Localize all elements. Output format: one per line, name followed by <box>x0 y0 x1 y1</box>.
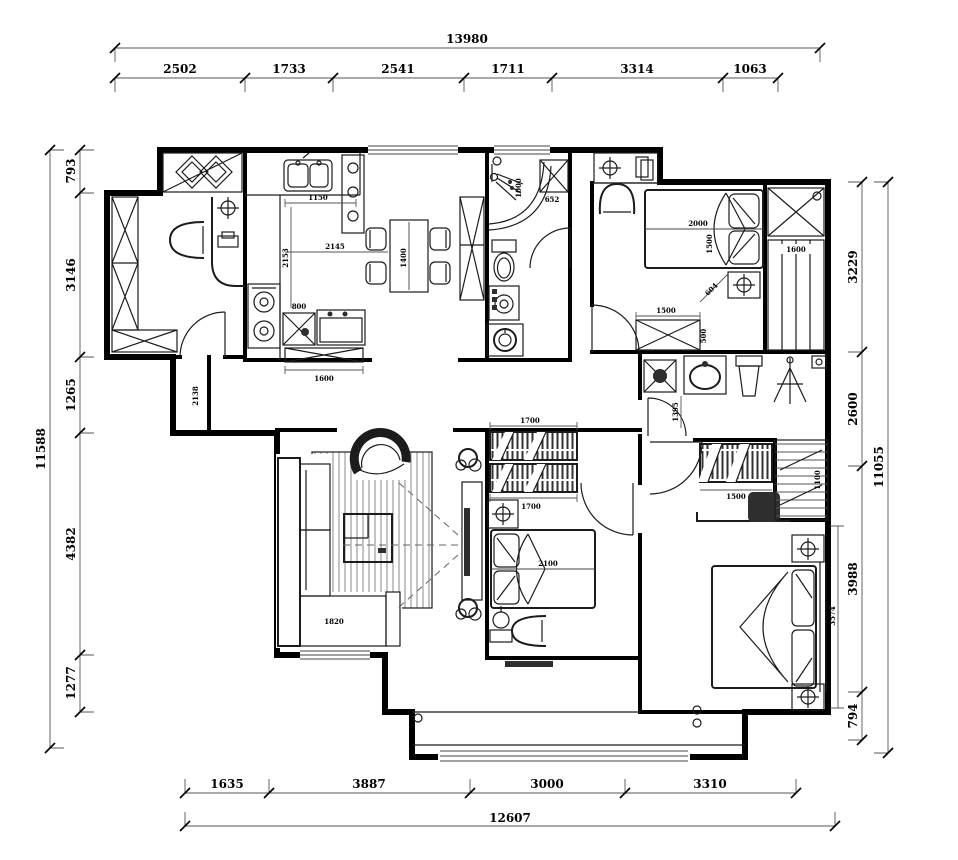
bath2-corner-drain <box>812 356 826 368</box>
door-study <box>180 312 225 357</box>
dim-bed2-closet: 1600 <box>786 245 806 254</box>
bedroom2-dresser <box>594 153 658 183</box>
tv-cabinet <box>462 482 482 600</box>
ceiling-lamp-icon <box>797 538 819 560</box>
dim-kitchen-depth: 2153 <box>281 248 290 268</box>
drain-icon <box>693 719 701 727</box>
pillow <box>792 630 814 686</box>
dim-bath1-width: 1000 <box>514 178 523 198</box>
dining-chair <box>430 262 450 284</box>
tv-screen <box>464 508 470 576</box>
dimension-chain-right: 11055 3229 2600 3988 794 <box>846 177 893 758</box>
kitchen-lower-cabinets <box>283 310 365 362</box>
dim-dining-table: 1400 <box>399 248 408 268</box>
dim-bed2-wardrobe: 1500 <box>656 306 676 315</box>
duct-shaft <box>540 160 568 192</box>
dim-sofa: 1820 <box>324 617 344 626</box>
bedroom3-bed <box>491 530 595 608</box>
bedroom3-nightstand <box>488 500 518 528</box>
dim-left-2: 3146 <box>64 258 78 291</box>
dim-bed3-shelf-b: 1700 <box>521 502 541 511</box>
stove <box>248 195 280 360</box>
dim-bottom-4: 3310 <box>693 777 726 791</box>
bedroom2-bed <box>645 190 763 268</box>
bedroom2-nightstand <box>728 272 760 298</box>
washing-machine <box>489 286 519 320</box>
dim-top-1: 2502 <box>163 62 196 76</box>
bedroom3-bookshelf <box>490 432 577 492</box>
pillow <box>792 570 814 626</box>
dim-bed2-length: 2000 <box>688 219 708 228</box>
bath2-washer <box>644 360 676 392</box>
dim-left-3: 1265 <box>64 378 78 411</box>
entry-cabinet <box>163 153 242 192</box>
dim-bed2-width: 1500 <box>705 234 714 254</box>
dim-bed2-wardrobe-depth: 500 <box>699 329 708 344</box>
dim-left-5: 1277 <box>64 666 78 699</box>
kitchen-tall-cabinet <box>342 155 364 233</box>
dim-bottom-2: 3887 <box>352 777 385 791</box>
study-printer <box>218 232 238 247</box>
bedroom2-closet <box>768 188 824 350</box>
door-bedroom-3 <box>581 483 633 535</box>
dim-kitchen-cab: 1600 <box>314 374 334 383</box>
dim-master-shelf: 1500 <box>726 492 746 501</box>
dimension-chain-left: 11588 793 3146 1265 4382 1277 <box>34 145 94 753</box>
master-nightstand <box>792 535 824 562</box>
door-bathroom-1 <box>530 228 570 268</box>
dim-right-2: 2600 <box>846 392 860 425</box>
armchair <box>352 433 408 480</box>
dim-top-6: 1063 <box>733 62 766 76</box>
dim-bed2-diagonal: 604 <box>703 281 720 298</box>
study-chair <box>170 222 204 258</box>
floor-plan-canvas: 13980 2502 1733 2541 1711 3314 1063 1158… <box>0 0 958 860</box>
dim-top-2: 1733 <box>272 62 305 76</box>
dim-right-1: 3229 <box>846 250 860 283</box>
dining-chair <box>430 228 450 250</box>
windowsill-bar <box>505 661 553 667</box>
dim-bath1-niche: 652 <box>545 195 560 204</box>
kitchen-sink <box>245 150 360 195</box>
round-basin <box>487 324 523 356</box>
study-bench <box>112 330 177 352</box>
dim-kitchen-cab-small: 800 <box>292 302 307 311</box>
plant-icon <box>456 449 481 471</box>
dim-total-top: 13980 <box>446 32 488 46</box>
master-bed <box>712 562 826 692</box>
living-room <box>276 433 482 648</box>
dim-total-right: 11055 <box>872 446 886 488</box>
dim-master-closet: 1100 <box>813 470 822 490</box>
dim-right-3: 3988 <box>846 562 860 595</box>
dining-chair <box>366 228 386 250</box>
study-wardrobe <box>112 197 138 330</box>
dim-bath2-depth: 1395 <box>671 402 680 422</box>
dim-kitchen-counter: 1150 <box>308 193 328 202</box>
dim-bed3-bed: 2100 <box>538 559 558 568</box>
door-master-bedroom <box>650 442 702 494</box>
dim-total-bottom: 12607 <box>489 811 531 825</box>
drain-icon <box>414 714 422 722</box>
bath2-basin <box>684 356 726 394</box>
bathroom-2 <box>644 356 826 404</box>
pillow <box>729 231 759 264</box>
bedroom2-chair <box>600 184 634 214</box>
dim-bed3-shelf-a: 1700 <box>520 416 540 425</box>
dim-bottom-3: 3000 <box>530 777 563 791</box>
dim-master-zone: 3574 <box>828 606 837 626</box>
ceiling-lamp-icon <box>492 503 514 525</box>
toilet-icon <box>492 240 516 281</box>
dim-total-left: 11588 <box>34 428 48 470</box>
plant-icon <box>456 599 481 620</box>
master-bookshelf <box>698 444 772 482</box>
ceiling-lamp-icon <box>733 274 755 296</box>
bedroom-3 <box>488 432 595 667</box>
dim-top-5: 3314 <box>620 62 653 76</box>
dimension-chain-bottom: 12607 1635 3887 3000 3310 <box>180 777 840 831</box>
bath2-shower <box>774 357 806 404</box>
dim-hallway: 2138 <box>191 386 200 406</box>
bedroom3-desk <box>490 606 546 646</box>
drain-icon <box>493 157 501 165</box>
dim-right-4: 794 <box>846 703 860 728</box>
dim-bottom-1: 1635 <box>210 777 243 791</box>
dim-left-4: 4382 <box>64 527 78 560</box>
bathroom-1 <box>487 157 568 356</box>
balcony <box>414 706 701 727</box>
ceiling-lamp-icon <box>599 157 621 179</box>
dim-top-4: 1711 <box>491 62 524 76</box>
ceiling-lamp-icon <box>797 686 819 708</box>
dining-chair <box>366 262 386 284</box>
bedroom2-wardrobe <box>636 320 700 350</box>
bath2-toilet <box>736 356 762 396</box>
door-bedroom-2 <box>592 305 639 352</box>
floor-plan-page: 13980 2502 1733 2541 1711 3314 1063 1158… <box>0 0 958 860</box>
dim-left-1: 793 <box>64 158 78 183</box>
dining-side-cabinet <box>460 197 484 300</box>
dimension-chain-top: 13980 2502 1733 2541 1711 3314 1063 <box>110 32 825 92</box>
door-bathroom-2 <box>648 398 686 436</box>
dining-table <box>366 220 450 292</box>
ceiling-lamp-icon <box>217 197 239 219</box>
dim-kitchen-width: 2145 <box>325 242 345 251</box>
doors <box>180 228 702 535</box>
dim-top-3: 2541 <box>381 62 414 76</box>
